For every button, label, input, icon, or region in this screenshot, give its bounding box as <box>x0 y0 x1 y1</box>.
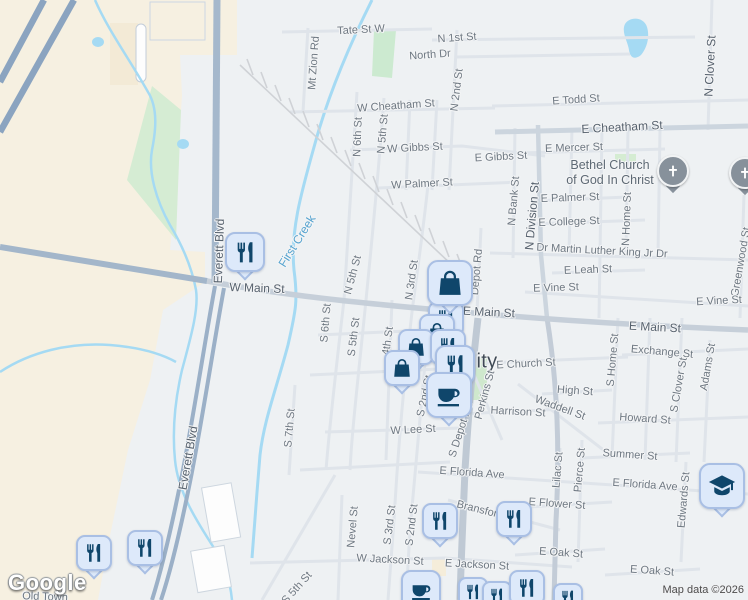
coffee-cup-icon <box>401 570 441 600</box>
google-logo: Google <box>8 570 87 596</box>
poi-label: Bethel Church <box>570 158 649 172</box>
street-label: E Mercer St <box>545 141 603 155</box>
street-label: W Lee St <box>390 423 436 437</box>
street-label: E Vine St <box>533 281 579 295</box>
restaurant-marker[interactable] <box>422 503 458 539</box>
street-label: N 6th St <box>351 117 364 157</box>
cross-icon <box>657 155 689 187</box>
cross-icon <box>729 157 748 189</box>
shopping-marker[interactable] <box>384 350 420 386</box>
street-label: E Palmer St <box>540 191 599 205</box>
shopping-bag-icon <box>427 260 473 306</box>
shopping-marker[interactable] <box>427 260 473 306</box>
street-label: E Vine St <box>696 294 742 308</box>
restaurant-marker[interactable] <box>127 530 163 566</box>
fork-knife-icon <box>422 503 458 539</box>
fork-knife-icon <box>482 581 512 600</box>
street-label: W Main St <box>229 280 285 296</box>
fork-knife-icon <box>496 501 532 537</box>
shopping-bag-icon <box>384 350 420 386</box>
coffee-marker[interactable] <box>426 372 472 418</box>
fork-knife-icon <box>76 535 112 571</box>
street-label: N Home St <box>620 192 634 246</box>
restaurant-marker[interactable] <box>76 535 112 571</box>
map-canvas[interactable]: Tate St WN 1st StNorth DrMt Zion RdW Che… <box>0 0 748 600</box>
basemap-graphics <box>0 0 748 600</box>
map-data-attribution: Map data ©2026 <box>663 584 745 596</box>
street-label: High St <box>557 384 594 398</box>
graduation-cap-icon <box>699 463 745 509</box>
street-label: E Main St <box>463 304 516 321</box>
street-label: E College St <box>538 215 600 229</box>
street-label: E Leah St <box>564 263 613 277</box>
poi-label: of God In Christ <box>566 173 654 187</box>
coffee-marker[interactable] <box>401 570 441 600</box>
restaurant-marker[interactable] <box>509 570 545 600</box>
church-marker[interactable] <box>657 155 689 187</box>
restaurant-marker[interactable] <box>553 583 583 600</box>
fork-knife-icon <box>509 570 545 600</box>
graduation-marker[interactable] <box>699 463 745 509</box>
restaurant-marker[interactable] <box>482 581 512 600</box>
coffee-cup-icon <box>426 372 472 418</box>
fork-knife-icon <box>127 530 163 566</box>
restaurant-marker[interactable] <box>496 501 532 537</box>
fork-knife-icon <box>225 232 265 272</box>
church-marker[interactable] <box>729 157 748 189</box>
fork-knife-icon <box>553 583 583 600</box>
street-label: E Main St <box>629 319 682 336</box>
restaurant-marker[interactable] <box>225 232 265 272</box>
street-label: Tate St W <box>337 23 385 37</box>
